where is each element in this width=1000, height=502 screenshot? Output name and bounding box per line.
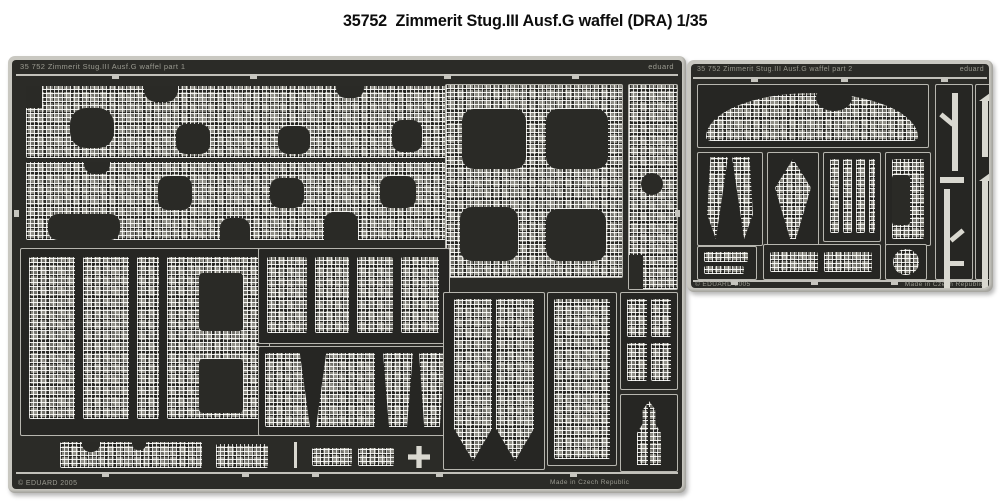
- frame-panel: [885, 152, 931, 246]
- bracket-branch: [949, 228, 964, 242]
- grid-panel: [547, 292, 617, 466]
- fret-large: 35 752 Zimmerit Stug.III Ausf.G waffel p…: [8, 56, 686, 493]
- product-photo-canvas: 35752Zimmerit Stug.III Ausf.G waffel (DR…: [0, 0, 1000, 502]
- cutout: [380, 176, 416, 208]
- bracket-bar: [944, 261, 964, 266]
- tower-seam: [648, 407, 650, 465]
- sprue-tab: [675, 210, 680, 217]
- sprue-tab: [841, 77, 848, 82]
- bracket-panel-left: [935, 84, 973, 280]
- sprue-tab: [436, 472, 443, 477]
- zimmerit-tile: [267, 257, 307, 333]
- zimmerit-strip: [83, 257, 129, 419]
- sprue-tab: [14, 210, 19, 217]
- sprue-tab: [250, 74, 257, 79]
- tile-strip-panel: [763, 244, 881, 280]
- cutout: [270, 178, 304, 208]
- pin-part: [294, 442, 297, 468]
- product-title-text: Zimmerit Stug.III Ausf.G waffel (DRA) 1/…: [396, 11, 708, 30]
- small-part: [358, 448, 394, 466]
- fins-panel: [697, 152, 763, 246]
- cutout: [892, 175, 910, 225]
- bracket-panel-right: [975, 84, 989, 280]
- zimmerit-strip: [137, 257, 159, 419]
- trapezoid-part: [419, 353, 445, 427]
- tile-panel-lower: [258, 346, 450, 436]
- hatch-cutout: [462, 109, 526, 169]
- small-part: [312, 448, 352, 466]
- tower-panel: [620, 394, 678, 472]
- cutout: [26, 86, 42, 108]
- sprue-tab: [570, 472, 577, 477]
- arch-panel: [697, 84, 929, 148]
- bracket-bar: [940, 177, 964, 183]
- strips-panel: [823, 152, 881, 242]
- cutout: [392, 120, 422, 152]
- product-number: 35752: [343, 11, 387, 30]
- tile-panel-upper: [258, 248, 450, 344]
- cross-part: [408, 446, 430, 468]
- zimmerit-square: [627, 299, 647, 337]
- trapezoid-part: [383, 353, 413, 427]
- cutout: [70, 108, 114, 148]
- sprue-rail-bottom: [16, 472, 678, 474]
- arch-notch: [816, 85, 852, 111]
- zimmerit-sheet-lower: [26, 162, 446, 240]
- cutout: [324, 212, 358, 240]
- zimmerit-strip: [29, 257, 75, 419]
- disc-panel: [885, 244, 927, 280]
- pointed-strip: [454, 299, 492, 461]
- zimmerit-square: [651, 343, 671, 381]
- thin-strip: [869, 159, 875, 233]
- cutout: [158, 176, 192, 210]
- sprue-tab: [444, 74, 451, 79]
- product-title: 35752Zimmerit Stug.III Ausf.G waffel (DR…: [343, 11, 707, 31]
- sprue-tab: [731, 280, 738, 285]
- zimmerit-square: [651, 299, 671, 337]
- engine-deck-panel: [445, 84, 623, 278]
- zimmerit-tile: [554, 299, 610, 459]
- fret-small-plate: 35 752 Zimmerit Stug.III Ausf.G waffel p…: [691, 64, 989, 288]
- small-parts-cluster: [60, 442, 202, 468]
- sprue-tab: [242, 472, 249, 477]
- eduard-logo-text: eduard: [960, 66, 984, 73]
- round-cutout: [641, 173, 663, 195]
- hatch-cutout: [546, 209, 606, 261]
- small-part: [704, 266, 744, 274]
- sprue-tab: [751, 77, 758, 82]
- fin-part: [732, 157, 754, 239]
- sprue-tab: [941, 77, 948, 82]
- thin-strip: [843, 159, 852, 233]
- zimmerit-tile: [315, 257, 349, 333]
- frame-part: [892, 159, 924, 239]
- cutout: [176, 124, 210, 154]
- small-part: [216, 444, 268, 468]
- kite-part: [775, 159, 811, 239]
- fret-small: 35 752 Zimmerit Stug.III Ausf.G waffel p…: [687, 60, 993, 292]
- thin-strip: [856, 159, 865, 233]
- bracket-strip: [952, 93, 958, 171]
- stake-strip: [982, 99, 988, 157]
- cutout: [199, 273, 243, 331]
- small-bits-panel: [697, 246, 757, 280]
- hatch-cutout: [460, 207, 518, 261]
- fret-header-text: 35 752 Zimmerit Stug.III Ausf.G waffel p…: [697, 66, 853, 73]
- eduard-logo-text: eduard: [648, 63, 674, 71]
- zimmerit-tile: [401, 257, 439, 333]
- cutout: [84, 162, 110, 174]
- cutout: [629, 255, 643, 289]
- cutout: [144, 86, 178, 102]
- sprue-tab: [112, 74, 119, 79]
- cutout: [336, 86, 364, 98]
- copyright-text: © EDUARD 2005: [18, 480, 77, 487]
- side-strip-panel: [628, 84, 678, 290]
- cutout: [132, 442, 146, 450]
- squares-panel: [620, 292, 678, 390]
- copyright-text: © EDUARD 2005: [695, 282, 751, 288]
- zimmerit-sheet-upper: [26, 86, 446, 158]
- thin-strip: [830, 159, 839, 233]
- tile-group: [770, 252, 818, 272]
- hatch-cutout: [546, 109, 608, 169]
- sprue-tab: [891, 280, 898, 285]
- made-in-text: Made in Czech Republic: [550, 480, 629, 487]
- small-part: [704, 252, 748, 262]
- cutout: [278, 126, 310, 154]
- cutout: [82, 442, 100, 452]
- stake-strip: [982, 179, 988, 288]
- tile-group: [824, 252, 872, 272]
- cutout: [48, 214, 120, 240]
- chevron-panel: [443, 292, 545, 470]
- fret-large-plate: 35 752 Zimmerit Stug.III Ausf.G waffel p…: [12, 60, 682, 489]
- fin-part: [706, 157, 728, 239]
- kite-panel: [767, 152, 819, 246]
- sprue-tab: [312, 472, 319, 477]
- sprue-tab: [572, 74, 579, 79]
- sprue-tab: [102, 472, 109, 477]
- disc-part: [893, 249, 919, 275]
- zimmerit-square: [627, 343, 647, 381]
- zimmerit-tile: [357, 257, 393, 333]
- sprue-tab: [811, 280, 818, 285]
- pointed-strip: [496, 299, 534, 461]
- arch-part: [706, 93, 918, 141]
- zimmerit-strip-wide: [167, 257, 259, 419]
- strip-group-panel: [20, 248, 270, 436]
- fret-header-text: 35 752 Zimmerit Stug.III Ausf.G waffel p…: [20, 63, 185, 71]
- cutout: [220, 218, 250, 240]
- cutout: [199, 359, 243, 413]
